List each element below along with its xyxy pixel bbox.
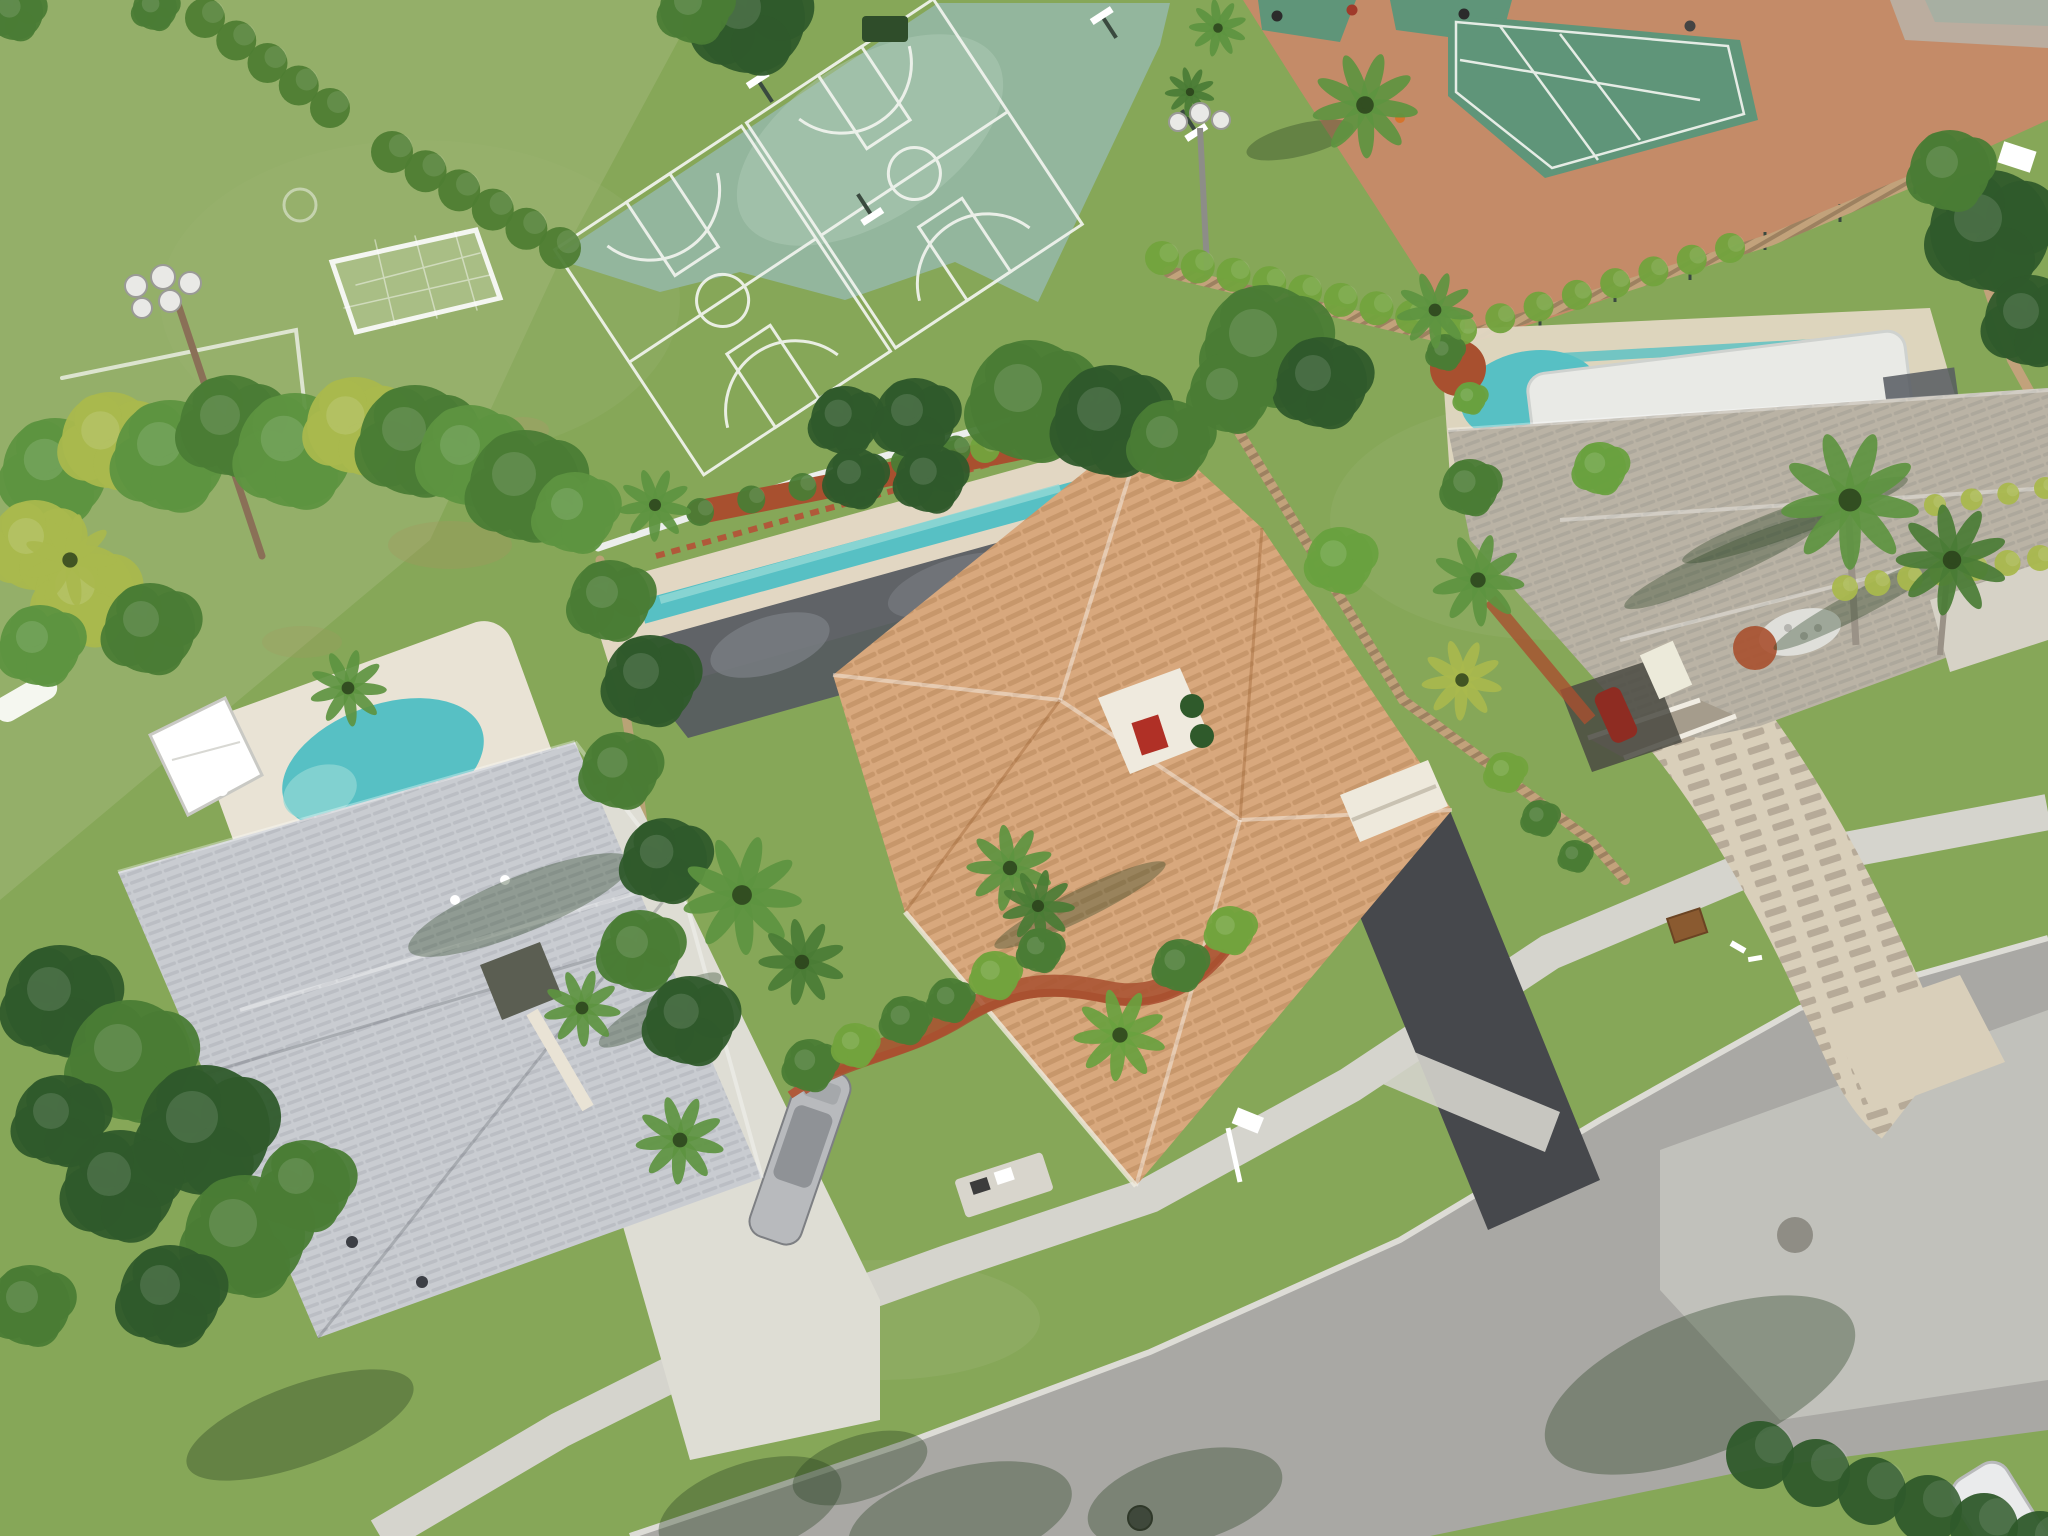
floodlight-head — [1169, 113, 1187, 131]
floodlight-head — [151, 265, 175, 289]
floodlight-head — [1212, 111, 1230, 129]
floodlight-head — [132, 298, 152, 318]
person — [1272, 11, 1283, 22]
person — [1347, 5, 1358, 16]
floodlight-head — [179, 272, 201, 294]
aerial-photo — [0, 0, 2048, 1536]
floodlight-head — [1190, 103, 1210, 123]
person — [1685, 21, 1696, 32]
court-bench — [862, 16, 908, 42]
floodlight-head — [125, 275, 147, 297]
oil-stain — [1777, 1217, 1813, 1253]
person — [1459, 9, 1470, 20]
floodlight-head — [159, 290, 181, 312]
